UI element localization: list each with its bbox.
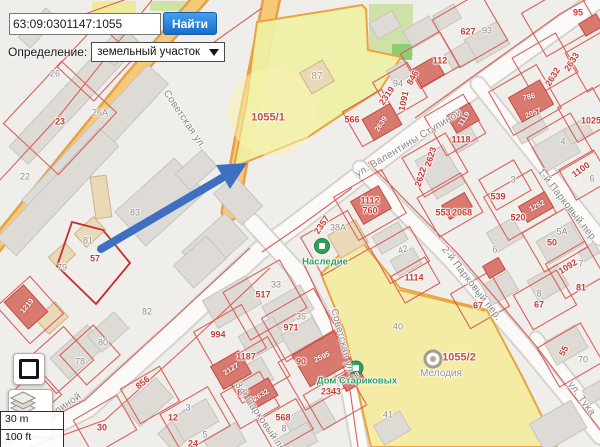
search-input[interactable] [9,13,161,35]
melodiya-poi-icon [425,351,441,367]
definition-select[interactable]: земельный участок [91,42,225,62]
extent-frame-icon [19,359,39,379]
house-poi-icon [349,361,363,375]
extent-button[interactable] [13,353,45,385]
map-canvas[interactable] [0,0,600,447]
chevron-down-icon [209,49,219,56]
definition-value: земельный участок [97,46,200,58]
definition-label: Определение: [8,45,87,59]
definition-row: Определение: земельный участок [8,42,225,62]
heritage-poi-icon [315,239,330,254]
scale-metric: 30 m [1,412,63,429]
cadastral-map-app: 9562793112948461091231956626392633263278… [0,0,600,447]
scale-bar: 30 m 100 ft [0,411,64,447]
find-button[interactable]: Найти [163,12,217,35]
scale-imperial: 100 ft [1,429,63,447]
